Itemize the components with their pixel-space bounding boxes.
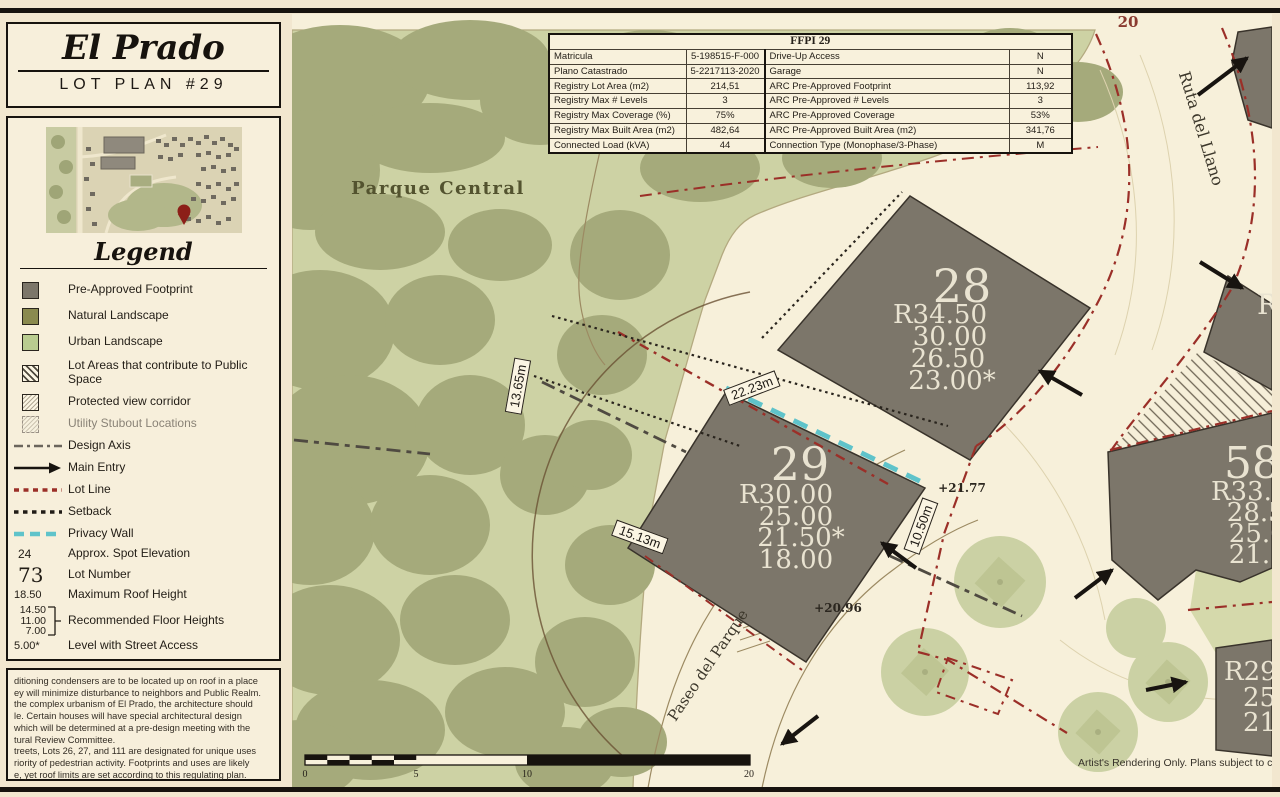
svg-text:21.50: 21.50 — [1243, 708, 1280, 738]
bracket-icon — [46, 604, 62, 638]
lot-line-icon — [14, 486, 62, 494]
legend-item: Privacy Wall — [14, 523, 273, 544]
table-header: FFPI 29 — [549, 34, 1072, 49]
park-label: Parque Central — [351, 178, 525, 199]
public-space-hatch-swatch — [22, 365, 39, 382]
legend-item: Pre-Approved Footprint — [14, 277, 273, 303]
note-line: ey will minimize disturbance to neighbor… — [14, 688, 273, 700]
legend-item: 73 Lot Number — [14, 564, 273, 585]
table-row: Registry Max Coverage (%)75%ARC Pre-Appr… — [549, 108, 1072, 123]
svg-text:18.00: 18.00 — [759, 545, 833, 575]
street-number-label: 20 — [1118, 13, 1139, 31]
table-row: Registry Lot Area (m2)214,51ARC Pre-Appr… — [549, 79, 1072, 94]
table-row: Plano Catastrado5-2217113-2020GarageN — [549, 64, 1072, 79]
main-entry-arrow-icon — [14, 461, 62, 475]
svg-text:23.00*: 23.00* — [908, 366, 995, 396]
floor-heights-symbol: 14.50 11.00 7.00 — [14, 605, 46, 637]
urban-landscape-swatch — [22, 334, 39, 351]
view-corridor-swatch — [22, 394, 39, 411]
disclaimer-text: Artist's Rendering Only. Plans subject t… — [1078, 757, 1280, 769]
note-line: e, yet roof limits are set according to … — [14, 770, 273, 782]
natural-landscape-swatch — [22, 308, 39, 325]
legend-item: Utility Stubout Locations — [14, 413, 273, 435]
plan-number: LOT PLAN #29 — [8, 76, 279, 94]
table-row: Registry Max Built Area (m2)482,64ARC Pr… — [549, 123, 1072, 138]
lot-number-symbol: 73 — [18, 563, 43, 587]
spot-elevation-symbol: 24 — [18, 547, 31, 561]
svg-text:0: 0 — [303, 769, 308, 780]
title-panel: El Prado LOT PLAN #29 — [6, 22, 281, 108]
svg-text:5: 5 — [414, 769, 419, 780]
table-row: Registry Max # Levels3ARC Pre-Approved #… — [549, 94, 1072, 109]
legend-item: Natural Landscape — [14, 303, 273, 329]
street-access-symbol: 5.00* — [14, 640, 40, 652]
note-line: the complex urbanism of El Prado, the ar… — [14, 699, 273, 711]
max-roof-height-symbol: 18.50 — [14, 589, 42, 601]
svg-text:21.50: 21.50 — [1229, 540, 1280, 570]
note-line: riority of pedestrian activity. Footprin… — [14, 758, 273, 770]
note-line: le. Certain houses will have special arc… — [14, 711, 273, 723]
legend-heading: Legend — [14, 237, 273, 266]
legend-item: 5.00* Level with Street Access — [14, 637, 273, 655]
note-line: ditioning condensers are to be located u… — [14, 676, 273, 688]
legend-item: 24 Approx. Spot Elevation — [14, 544, 273, 564]
privacy-wall-icon — [14, 530, 62, 538]
svg-text:10: 10 — [522, 769, 532, 780]
svg-text:20: 20 — [744, 769, 754, 780]
setback-icon — [14, 508, 62, 516]
title-divider — [18, 70, 269, 72]
legend-item: Lot Areas that contribute to Public Spac… — [14, 355, 273, 391]
bottom-frame-rule — [0, 787, 1280, 792]
project-title: El Prado — [8, 28, 279, 68]
utility-stubout-swatch — [22, 416, 39, 433]
spot-elevation-1: +21.77 — [938, 481, 986, 495]
legend-item: Protected view corridor — [14, 391, 273, 413]
top-frame-rule — [0, 8, 1280, 13]
legend-item: Setback — [14, 501, 273, 523]
ffpi-data-table: FFPI 29 Matricula5-198515-F-000Drive-Up … — [548, 33, 1073, 154]
legend-item: Main Entry — [14, 457, 273, 479]
legend-item: Lot Line — [14, 479, 273, 501]
note-line: treets, Lots 26, 27, and 111 are designa… — [14, 746, 273, 758]
table-row: Matricula5-198515-F-000Drive-Up AccessN — [549, 49, 1072, 64]
legend-item: Urban Landscape — [14, 329, 273, 355]
legend-item: Design Axis — [14, 435, 273, 457]
overview-minimap — [46, 127, 242, 233]
legend-divider — [20, 268, 267, 269]
note-line: tural Review Committee. — [14, 735, 273, 747]
table-row: Connected Load (kVA)44Connection Type (M… — [549, 138, 1072, 153]
legend-item: 18.50 Maximum Roof Height — [14, 585, 273, 605]
lot-right-partial-label: R — [1257, 288, 1279, 321]
footprint-swatch — [22, 282, 39, 299]
legend-panel: Legend Pre-Approved Footprint Natural La… — [6, 116, 281, 661]
spot-elevation-2: +20.96 — [814, 601, 862, 615]
notes-panel: ditioning condensers are to be located u… — [6, 668, 281, 781]
note-line: which will be determined at a pre-design… — [14, 723, 273, 735]
lot-plan-sheet: { "title": {"name": "El Prado", "subtitl… — [0, 0, 1280, 797]
design-axis-icon — [14, 442, 62, 450]
legend-item: 14.50 11.00 7.00 Recommended Floor Heigh… — [14, 605, 273, 637]
